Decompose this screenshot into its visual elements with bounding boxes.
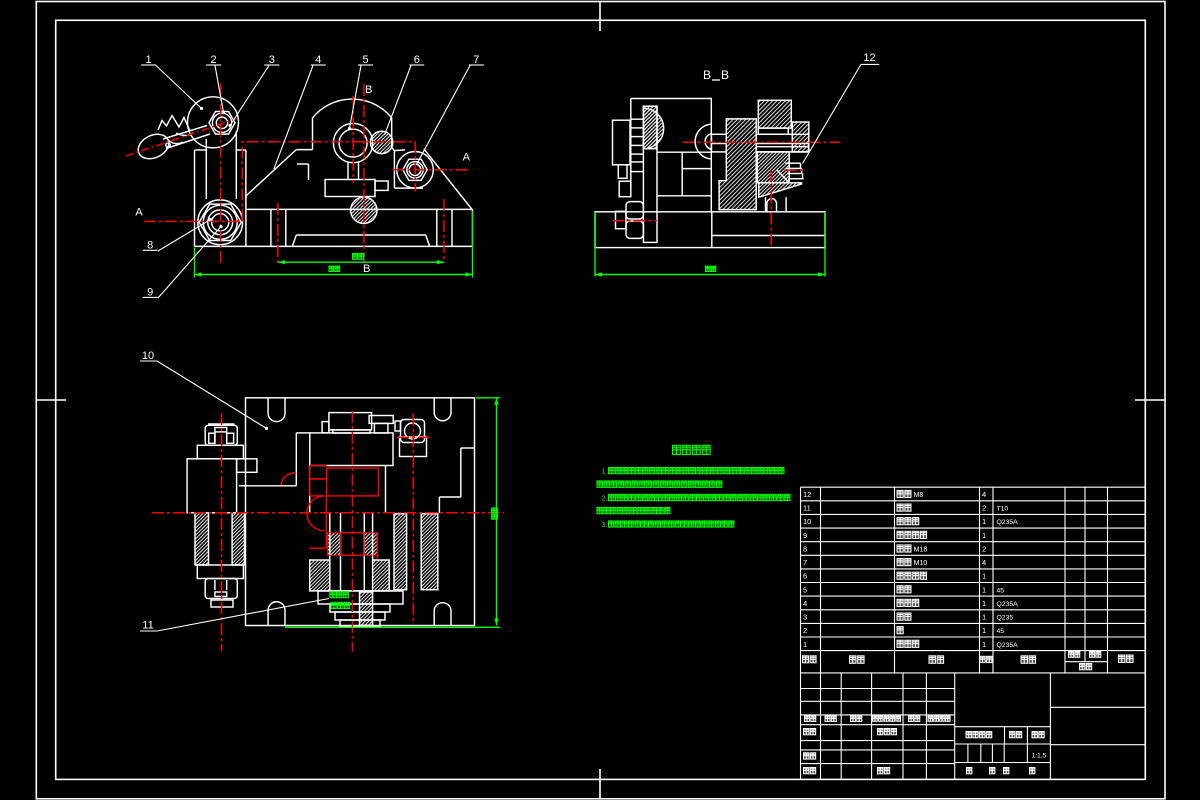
svg-text:2: 2 [803, 626, 807, 635]
svg-text:8: 8 [147, 239, 153, 251]
svg-text:12: 12 [803, 490, 811, 499]
svg-text:Q235A: Q235A [997, 642, 1019, 649]
svg-text:1: 1 [982, 572, 986, 581]
svg-text:2: 2 [982, 504, 986, 513]
svg-text:1: 1 [982, 585, 986, 594]
svg-text:2.: 2. [602, 495, 608, 502]
svg-text:1: 1 [982, 531, 986, 540]
svg-text:2: 2 [211, 54, 217, 66]
svg-text:1: 1 [803, 640, 807, 649]
svg-text:B: B [721, 68, 729, 82]
svg-text:7: 7 [473, 54, 479, 66]
svg-text:11: 11 [142, 620, 153, 632]
svg-text:2: 2 [982, 545, 986, 554]
svg-text:5: 5 [803, 585, 807, 594]
svg-text:10: 10 [803, 517, 811, 526]
svg-text:7: 7 [803, 558, 807, 567]
svg-text:45: 45 [997, 628, 1005, 635]
svg-text:Q235A: Q235A [997, 519, 1019, 526]
svg-text:1: 1 [982, 517, 986, 526]
svg-text:4: 4 [315, 54, 321, 66]
svg-text:M18: M18 [914, 547, 928, 554]
svg-text:4: 4 [982, 558, 986, 567]
svg-text:1: 1 [982, 640, 986, 649]
svg-text:8: 8 [803, 545, 807, 554]
svg-text:M8: M8 [914, 492, 924, 499]
svg-text:B: B [363, 263, 370, 275]
svg-text:3: 3 [269, 54, 275, 66]
svg-text:4: 4 [982, 490, 986, 499]
svg-text:9: 9 [803, 531, 807, 540]
svg-text:3.: 3. [602, 522, 608, 529]
svg-text:1:1.5: 1:1.5 [1032, 753, 1047, 760]
svg-text:B: B [703, 68, 711, 82]
svg-text:5: 5 [362, 54, 368, 66]
svg-text:10: 10 [142, 350, 154, 362]
svg-text:M10: M10 [914, 560, 928, 567]
svg-text:1: 1 [982, 626, 986, 635]
svg-text:12: 12 [863, 52, 875, 64]
svg-text:A: A [135, 207, 143, 219]
svg-text:A: A [463, 152, 471, 164]
svg-text:T10: T10 [997, 506, 1009, 513]
svg-text:1: 1 [146, 54, 152, 66]
svg-text:11: 11 [803, 504, 811, 513]
svg-text:.: . [952, 717, 953, 723]
svg-text:4: 4 [803, 599, 807, 608]
svg-text:Q235A: Q235A [997, 601, 1019, 608]
svg-text:Q235: Q235 [997, 615, 1014, 622]
svg-text:6: 6 [414, 54, 420, 66]
svg-text:45: 45 [997, 587, 1005, 594]
svg-text:B: B [365, 84, 372, 96]
svg-text:1: 1 [982, 599, 986, 608]
svg-text:1.: 1. [602, 469, 608, 476]
svg-text:6: 6 [803, 572, 807, 581]
svg-text:9: 9 [147, 286, 153, 298]
svg-text:3: 3 [803, 613, 807, 622]
svg-text:1: 1 [982, 613, 986, 622]
